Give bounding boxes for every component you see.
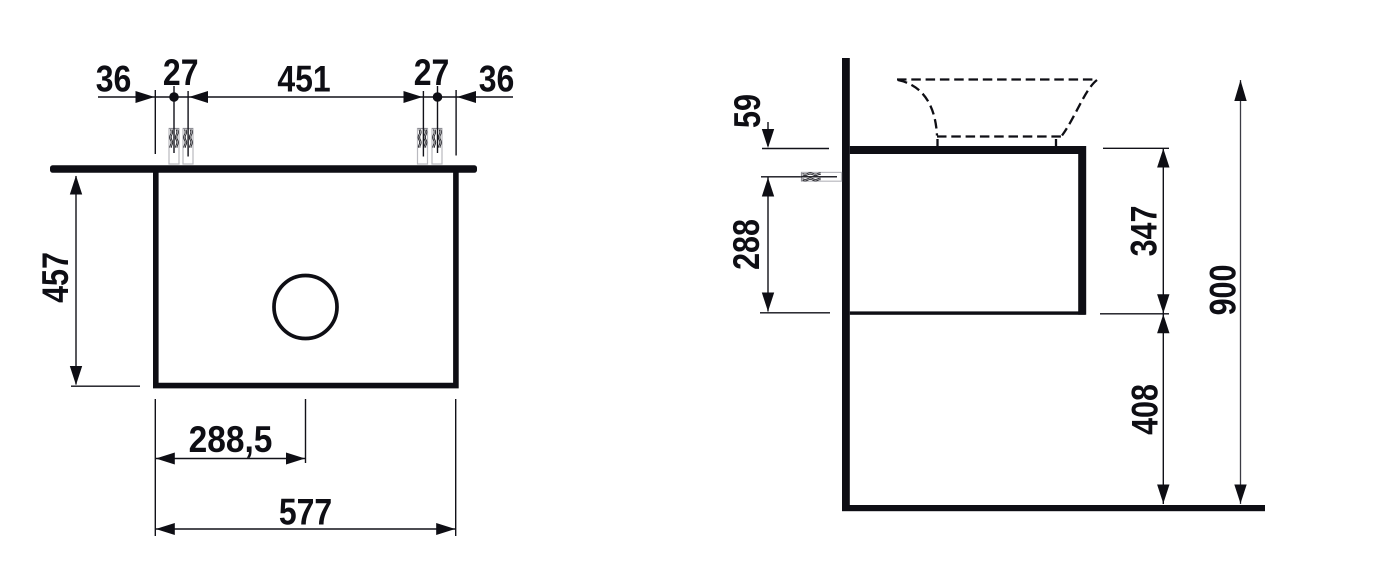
svg-text:457: 457 [35, 252, 77, 303]
svg-text:451: 451 [277, 59, 330, 100]
svg-text:288: 288 [726, 219, 768, 270]
svg-text:408: 408 [1125, 384, 1167, 435]
svg-text:347: 347 [1124, 206, 1166, 257]
svg-text:27: 27 [414, 53, 450, 94]
svg-text:59: 59 [727, 94, 769, 128]
svg-text:36: 36 [479, 59, 515, 100]
svg-text:900: 900 [1203, 265, 1245, 316]
svg-text:36: 36 [96, 59, 132, 100]
svg-text:27: 27 [163, 53, 199, 94]
svg-text:577: 577 [279, 492, 332, 533]
svg-text:288,5: 288,5 [189, 419, 273, 460]
